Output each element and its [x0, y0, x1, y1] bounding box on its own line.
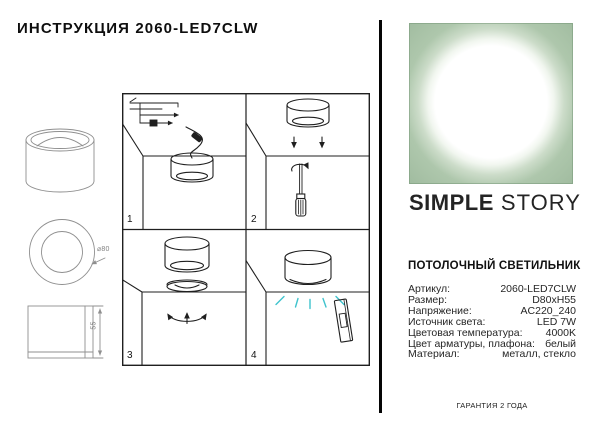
wiring-diagram-icon — [130, 98, 178, 126]
product-photo — [409, 23, 573, 184]
product-heading: ПОТОЛОЧНЫЙ СВЕТИЛЬНИК — [408, 260, 580, 272]
spec-row: Цветовая температура: 4000K — [408, 328, 576, 339]
spec-value: LED 7W — [537, 317, 576, 328]
room-corner-lines — [122, 280, 246, 367]
instruction-sheet: ИНСТРУКЦИЯ 2060-LED7CLW — [0, 0, 600, 433]
vertical-divider — [379, 20, 382, 413]
warranty-note: ГАРАНТИЯ 2 ГОДА — [408, 401, 576, 410]
step-number-2: 2 — [251, 214, 263, 225]
page-title: ИНСТРУКЦИЯ 2060-LED7CLW — [17, 20, 259, 37]
brand-logo: SIMPLESTORY — [409, 190, 573, 216]
lamp-icon — [287, 99, 329, 127]
step3-illustration — [122, 237, 246, 366]
spec-value: 4000K — [546, 328, 576, 339]
diameter-dimension-label: ⌀80 — [97, 245, 110, 253]
brand-logo-secondary: STORY — [501, 190, 581, 215]
lamp-perspective-drawing — [26, 129, 94, 192]
spec-label: Источник света: — [408, 317, 485, 328]
down-arrow-icon — [294, 137, 322, 147]
room-corner-lines — [122, 123, 246, 230]
spec-value: металл, стекло — [502, 349, 576, 360]
brand-logo-primary: SIMPLE — [409, 190, 494, 215]
spec-label: Материал: — [408, 349, 460, 360]
step4-illustration — [246, 251, 370, 367]
step2-illustration — [246, 99, 370, 230]
step-number-1: 1 — [127, 214, 139, 225]
rotation-arrow-icon — [168, 314, 206, 324]
step1-illustration — [122, 98, 246, 230]
step-number-4: 4 — [251, 350, 263, 361]
light-rays-icon — [276, 297, 344, 309]
height-dimension-label: 55 — [91, 318, 98, 334]
panel-grid-lines — [123, 94, 370, 366]
mounting-ring-icon — [167, 280, 207, 292]
spec-row: Источник света: LED 7W — [408, 317, 576, 328]
technical-drawings — [15, 118, 120, 368]
spec-label: Цветовая температура: — [408, 328, 523, 339]
installation-steps-diagram — [122, 93, 370, 366]
room-corner-lines — [246, 123, 370, 230]
spec-list: Артикул: 2060-LED7CLW Размер: D80xH55 На… — [408, 284, 576, 360]
step-number-3: 3 — [127, 350, 139, 361]
lamp-icon — [285, 251, 331, 285]
screwdriver-icon — [292, 164, 308, 216]
wall-switch-icon — [334, 299, 352, 342]
lamp-icon — [165, 237, 209, 272]
room-corner-lines — [246, 261, 370, 367]
lamp-top-view-drawing — [30, 220, 106, 285]
spec-row: Материал: металл, стекло — [408, 349, 576, 360]
